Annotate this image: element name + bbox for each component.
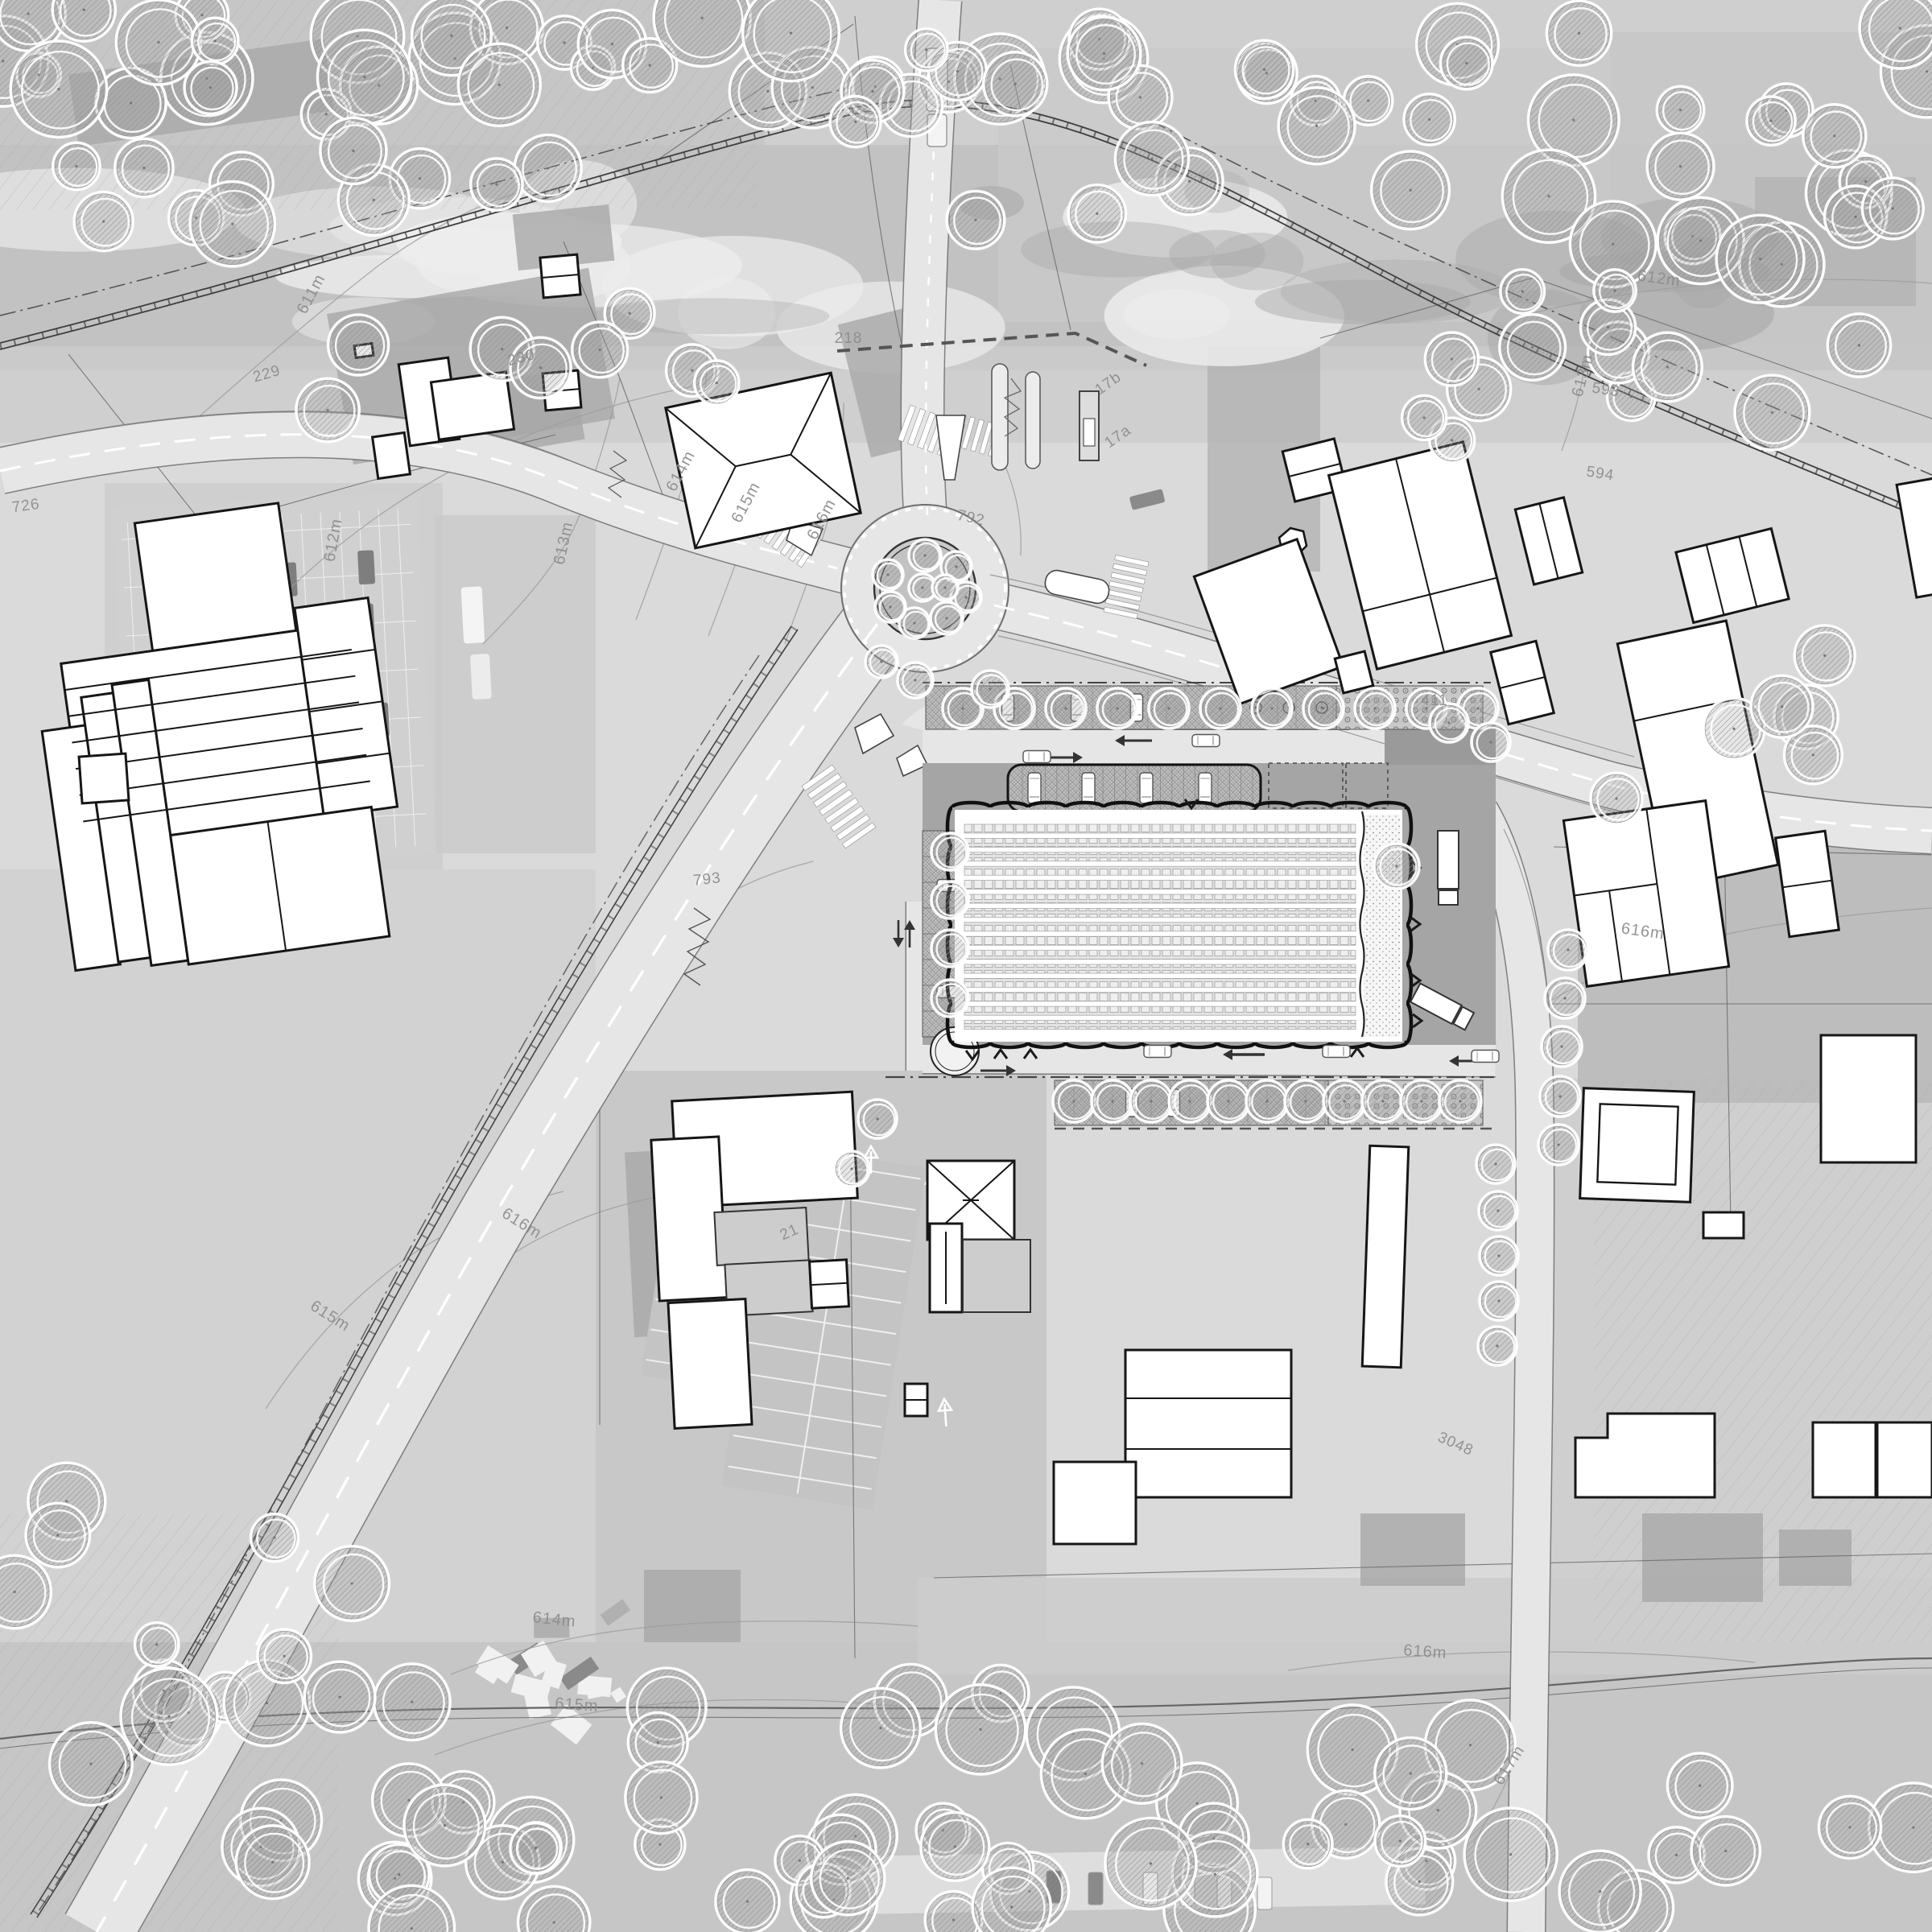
tree-icon	[1374, 844, 1419, 889]
tree-icon	[374, 1664, 451, 1740]
tree-icon	[1735, 375, 1810, 450]
tree-icon	[1149, 688, 1189, 729]
site-plan-map[interactable]: 611m612m613m614m615m616m612m613m616m615m…	[0, 0, 1932, 1932]
tree-icon	[1476, 1145, 1515, 1183]
tree-icon	[1633, 332, 1703, 402]
building-footprint	[373, 432, 411, 478]
tree-icon	[1067, 17, 1141, 90]
tree-icon	[984, 52, 1047, 116]
tree-icon	[1115, 122, 1188, 196]
tree-icon	[1323, 1080, 1365, 1122]
tree-icon	[1538, 1125, 1579, 1165]
skylight-grid-strip	[964, 978, 1356, 987]
tree-icon	[1303, 688, 1344, 729]
tree-icon	[1130, 1080, 1172, 1122]
skylight-grid-strip	[964, 951, 1356, 960]
tree-icon	[1862, 178, 1923, 239]
building-footprint	[1813, 1422, 1876, 1497]
tree-icon	[935, 1685, 1025, 1774]
tree-icon	[1464, 1808, 1557, 1901]
tree-icon	[898, 663, 933, 698]
tree-icon	[1479, 1191, 1517, 1230]
car-icon	[1472, 1051, 1499, 1063]
tree-icon	[695, 361, 739, 405]
tree-icon	[1372, 151, 1450, 229]
tree-icon	[1375, 1816, 1426, 1867]
tree-icon	[404, 1785, 485, 1866]
tree-icon	[1200, 688, 1241, 729]
car-icon	[1199, 773, 1212, 803]
tree-icon	[865, 646, 898, 678]
tree-icon	[1092, 1080, 1133, 1122]
tree-icon	[1252, 688, 1292, 729]
tree-icon	[906, 29, 947, 71]
tree-icon	[1751, 675, 1813, 737]
tree-icon	[909, 539, 941, 572]
tree-icon	[1402, 396, 1447, 440]
tree-icon	[947, 191, 1005, 249]
building-footprint	[1597, 1104, 1678, 1184]
building-footprint	[1125, 1350, 1291, 1497]
tree-icon	[572, 322, 628, 378]
parcel-label: 218	[835, 330, 863, 347]
tree-icon	[510, 1823, 560, 1873]
tree-icon	[1355, 688, 1395, 729]
tree-icon	[841, 1688, 921, 1768]
tree-icon	[1819, 1796, 1881, 1858]
skylight-grid-strip	[964, 993, 1356, 1001]
tree-icon	[1594, 270, 1636, 312]
skylight-grid-strip	[964, 923, 1356, 931]
contour-label: 616m	[1403, 1641, 1447, 1662]
skylight-grid-strip	[964, 964, 1356, 973]
tree-icon	[1545, 978, 1585, 1018]
car-icon	[1192, 735, 1220, 747]
tree-icon	[1425, 332, 1478, 386]
tree-icon	[931, 881, 968, 919]
tree-icon	[1207, 1080, 1249, 1122]
car-icon	[1140, 773, 1153, 803]
tree-icon	[1375, 1738, 1447, 1810]
tree-icon	[1591, 773, 1642, 824]
tree-icon	[320, 118, 386, 184]
parcel-label: 793	[692, 869, 722, 890]
tree-icon	[471, 159, 522, 210]
tree-icon	[1542, 1026, 1582, 1067]
tree-icon	[830, 97, 881, 147]
tree-icon	[458, 43, 540, 126]
tree-icon	[1169, 1080, 1211, 1122]
tree-icon	[50, 1723, 133, 1806]
skylight-grid-strip	[964, 908, 1356, 917]
tree-icon	[716, 1870, 779, 1932]
tree-icon	[1794, 625, 1855, 686]
car-icon	[1023, 751, 1051, 763]
car-icon	[1144, 1046, 1171, 1058]
gray-building	[963, 1240, 1030, 1312]
tree-icon	[811, 1842, 885, 1915]
tree-icon	[972, 671, 1009, 708]
car-icon	[1323, 1046, 1350, 1058]
building-footprint	[1054, 1462, 1136, 1544]
tree-icon	[1472, 723, 1510, 762]
tree-icon	[873, 559, 903, 590]
tree-icon	[931, 930, 968, 967]
tree-icon	[1559, 1851, 1641, 1932]
parcel-label: 411	[1421, 692, 1447, 709]
tree-icon	[1501, 270, 1544, 313]
skylight-grid-strip	[964, 936, 1356, 945]
tree-icon	[1283, 1819, 1331, 1868]
tree-icon	[1068, 185, 1125, 242]
car-icon	[1028, 773, 1041, 803]
tree-icon	[1439, 1080, 1481, 1122]
tree-icon	[625, 1762, 697, 1834]
project-building	[947, 799, 1422, 1059]
skylight-grid-strip	[964, 881, 1356, 890]
tree-icon	[1102, 1724, 1182, 1803]
tree-icon	[190, 182, 275, 266]
tree-icon	[1668, 1753, 1732, 1818]
tree-icon	[1105, 1818, 1196, 1909]
building-footprint	[1877, 1422, 1932, 1497]
tree-icon	[1691, 1817, 1760, 1885]
tree-icon	[1480, 1236, 1518, 1275]
tree-icon	[1478, 1327, 1517, 1365]
tree-icon	[931, 602, 963, 634]
skylight-grid-strip	[964, 824, 1356, 833]
tree-icon	[1540, 1076, 1580, 1117]
tree-icon	[972, 1868, 1051, 1932]
truck-icon	[1438, 831, 1459, 905]
tree-icon	[1827, 314, 1890, 377]
tree-icon	[1235, 40, 1293, 98]
skylight-grid-strip	[964, 838, 1356, 847]
tree-icon	[1747, 97, 1795, 145]
tree-icon	[236, 1826, 309, 1899]
tree-icon	[1440, 37, 1492, 89]
tree-icon	[1657, 86, 1703, 133]
tree-icon	[251, 1514, 299, 1562]
tree-icon	[514, 135, 581, 202]
tree-icon	[121, 1668, 217, 1765]
tree-icon	[135, 1623, 179, 1666]
building-footprint	[79, 753, 129, 803]
tree-icon	[1430, 704, 1468, 742]
tree-icon	[53, 142, 100, 189]
tree-icon	[304, 1662, 375, 1732]
car-icon	[1082, 773, 1095, 803]
tree-icon	[115, 138, 173, 196]
building-footprint	[1821, 1035, 1916, 1162]
tree-icon	[1278, 88, 1355, 164]
tree-icon	[1404, 94, 1455, 145]
tree-icon	[26, 1503, 89, 1567]
tree-icon	[858, 1100, 897, 1138]
tree-icon	[931, 980, 968, 1017]
skylight-grid-strip	[964, 852, 1356, 861]
tree-icon	[10, 41, 106, 137]
tree-icon	[1285, 1080, 1327, 1122]
skylight-grid-strip	[964, 1006, 1356, 1015]
tree-icon	[510, 337, 571, 398]
tree-icon	[315, 1546, 390, 1621]
tree-icon	[875, 592, 906, 622]
skylight-grid-strip	[964, 866, 1356, 875]
tree-icon	[1548, 930, 1588, 970]
tree-icon	[743, 0, 840, 81]
tree-icon	[1401, 1080, 1443, 1122]
tree-icon	[1500, 315, 1566, 381]
tree-icon	[1803, 105, 1866, 167]
tree-icon	[1716, 215, 1804, 303]
skylight-grid-strip	[964, 894, 1356, 903]
contour-label: 615m	[555, 1695, 599, 1715]
tree-icon	[74, 192, 133, 251]
building-footprint	[668, 1299, 752, 1429]
tree-icon	[834, 1151, 869, 1187]
skylight-grid-strip	[964, 1021, 1356, 1030]
building-footprint	[1703, 1212, 1744, 1238]
tree-icon	[328, 315, 389, 375]
tree-icon	[1647, 133, 1714, 200]
tree-icon	[932, 575, 958, 601]
tree-icon	[1097, 688, 1137, 729]
tree-icon	[1246, 1080, 1288, 1122]
tree-icon	[317, 30, 411, 124]
tree-icon	[1547, 1, 1612, 65]
tree-icon	[1362, 1080, 1404, 1122]
tree-icon	[1046, 688, 1086, 729]
tree-icon	[296, 378, 359, 441]
tree-icon	[921, 1813, 989, 1881]
tree-icon	[1480, 1282, 1518, 1320]
tree-icon	[184, 61, 237, 114]
building-footprint	[1362, 1146, 1409, 1368]
tree-icon	[192, 18, 237, 64]
tree-icon	[1053, 1080, 1095, 1122]
tree-icon	[258, 1629, 311, 1682]
tree-icon	[931, 833, 968, 870]
